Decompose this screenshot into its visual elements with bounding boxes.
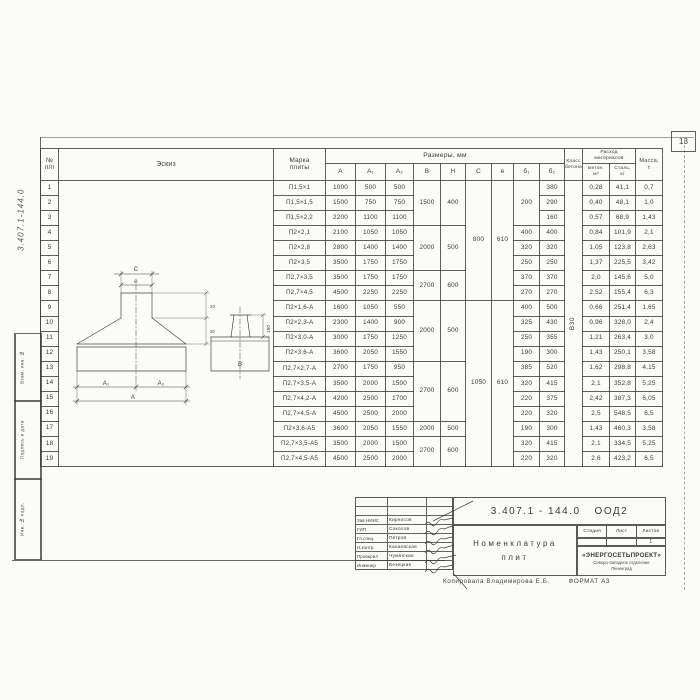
dim-label-e: е — [134, 279, 138, 285]
value-cell: 251,4 — [610, 301, 636, 316]
row-number: 8 — [41, 286, 59, 301]
copier-text: Копировала Владимирова Е.Б. — [443, 578, 550, 585]
value-cell: 5,0 — [636, 271, 663, 286]
header-line: т — [636, 165, 662, 171]
concrete-class: В30 — [565, 181, 583, 467]
plate-mark: П2×3,5 — [274, 256, 326, 271]
value-cell: 1750 — [356, 256, 386, 271]
value-cell: 3500 — [326, 376, 356, 391]
row-number: 11 — [41, 331, 59, 346]
value-cell: 1500 — [386, 376, 414, 391]
value-cell: 220 — [514, 391, 540, 406]
row-number: 18 — [41, 436, 59, 451]
col-header-concrete: Бетон, м³ — [583, 164, 610, 181]
value-cell: 430 — [540, 316, 565, 331]
value-cell: 800 — [466, 181, 492, 301]
value-cell: 3500 — [326, 271, 356, 286]
dim-label-20: 20 — [210, 304, 216, 309]
extension-lines — [152, 293, 209, 344]
sheet-frame-top — [40, 137, 694, 138]
value-cell: 325 — [514, 316, 540, 331]
value-cell: 300 — [540, 421, 565, 436]
value-cell: 1,43 — [583, 421, 610, 436]
value-cell: 3000 — [326, 331, 356, 346]
person-name: Безецкая — [388, 561, 427, 569]
value-cell: 3,58 — [636, 421, 663, 436]
signature-cell — [427, 516, 452, 524]
boss-outline — [121, 293, 152, 318]
value-cell: 2050 — [356, 346, 386, 361]
col-header-A2: А₂ — [386, 164, 414, 181]
value-cell: 3,0 — [636, 331, 663, 346]
nomenclature-table: № п/п Эскиз Марка плиты Размеры, мм Клас… — [40, 148, 663, 467]
format-label: ФОРМАТ А3 — [569, 578, 610, 585]
plate-mark: П2,7×4,2-А — [274, 391, 326, 406]
col-header-C: С — [466, 164, 492, 181]
value-cell: 4500 — [326, 406, 356, 421]
value-cell: 1,05 — [583, 241, 610, 256]
value-cell: 220 — [514, 406, 540, 421]
plate-mark: П1,5×1,5 — [274, 196, 326, 211]
value-cell: 1750 — [356, 331, 386, 346]
value-cell: 1,43 — [583, 346, 610, 361]
sheet-value — [607, 539, 636, 545]
value-cell: 750 — [356, 196, 386, 211]
signature-row: Зав.НИИСКирносов — [356, 516, 452, 525]
value-cell: 400 — [514, 301, 540, 316]
person-role: Зав.НИИС — [356, 516, 388, 524]
value-cell: 4200 — [326, 391, 356, 406]
value-cell: 750 — [386, 196, 414, 211]
value-cell: 1750 — [386, 271, 414, 286]
value-cell: 101,9 — [610, 226, 636, 241]
signature-cell — [427, 507, 452, 515]
value-cell: 0,40 — [583, 196, 610, 211]
value-cell: 2,52 — [583, 286, 610, 301]
header-line: материалов — [583, 156, 635, 162]
value-cell: 3500 — [326, 256, 356, 271]
drawing-title-line2: плит — [501, 553, 528, 562]
col-header-dimensions: Размеры, мм — [326, 149, 565, 164]
value-cell: 355 — [540, 331, 565, 346]
value-cell: 320 — [514, 241, 540, 256]
col-header-b1: б₁ — [514, 164, 540, 181]
person-role: ГИП — [356, 525, 388, 533]
page-number-box: 13 — [671, 131, 696, 152]
table-row: 1 C е А₁ А₂ А 20 30 В 180 П1,5×110005005… — [41, 181, 663, 196]
value-cell: 5,25 — [636, 376, 663, 391]
value-cell: 2,5 — [583, 406, 610, 421]
value-cell: 6,3 — [636, 286, 663, 301]
row-number: 4 — [41, 226, 59, 241]
col-header-sketch: Эскиз — [59, 149, 274, 181]
value-cell: 298,8 — [610, 361, 636, 376]
value-cell: 415 — [540, 376, 565, 391]
value-cell: 155,4 — [610, 286, 636, 301]
value-cell: 375 — [540, 391, 565, 406]
row-number: 10 — [41, 316, 59, 331]
drawing-title-box: Номенклатура плит — [453, 525, 577, 576]
value-cell: 2200 — [326, 211, 356, 226]
slope-outline — [77, 318, 186, 344]
value-cell: 1500 — [386, 436, 414, 451]
signature-row — [356, 507, 452, 516]
row-number: 5 — [41, 241, 59, 256]
value-cell: 380 — [540, 181, 565, 196]
signature-row: ИнженерБезецкая — [356, 561, 452, 569]
value-cell: 328,0 — [610, 316, 636, 331]
value-cell: 1,0 — [636, 196, 663, 211]
stamp-box-vzam-inv: Взам. инв. № — [14, 333, 42, 402]
row-number: 14 — [41, 376, 59, 391]
header-line: Класс — [565, 159, 582, 165]
value-cell: 1,21 — [583, 331, 610, 346]
value-cell: 1100 — [356, 211, 386, 226]
value-cell: 1000 — [326, 181, 356, 196]
value-cell: 500 — [441, 301, 466, 361]
person-role — [356, 498, 388, 506]
plate-mark: П2×3,6-А — [274, 346, 326, 361]
value-cell: 2700 — [326, 361, 356, 376]
value-cell: 2,6 — [583, 452, 610, 467]
col-header-steel: Сталь, кг — [610, 164, 636, 181]
person-role: Инженер — [356, 561, 388, 569]
value-cell: 500 — [441, 421, 466, 436]
value-cell: 290 — [540, 196, 565, 211]
value-cell: 2500 — [356, 391, 386, 406]
header-line: Масса, — [636, 158, 662, 164]
value-cell: 250 — [540, 256, 565, 271]
value-cell: 387,3 — [610, 391, 636, 406]
row-number: 9 — [41, 301, 59, 316]
slab-section-sketch: C е А₁ А₂ А 20 30 В 180 — [59, 181, 274, 466]
value-cell: 370 — [540, 271, 565, 286]
value-cell: 160 — [540, 211, 565, 226]
dim-label-30: 30 — [210, 329, 216, 334]
plate-mark: П2,7×3,5 — [274, 271, 326, 286]
signature-cell — [427, 534, 452, 542]
person-role: Гл.спец. — [356, 534, 388, 542]
dim-label-a: А — [131, 395, 135, 401]
plate-mark: П2,7×3,5-А — [274, 376, 326, 391]
value-cell: 4500 — [326, 286, 356, 301]
value-cell: 2,1 — [636, 226, 663, 241]
value-cell: 460,3 — [610, 421, 636, 436]
value-cell: 610 — [492, 301, 514, 467]
value-cell: 123,8 — [610, 241, 636, 256]
value-cell: 2,42 — [583, 391, 610, 406]
col-header-b2: б₂ — [540, 164, 565, 181]
col-header-material-consumption: Расход материалов — [583, 149, 636, 164]
value-cell: 200 — [514, 181, 540, 226]
col-header-B: В — [414, 164, 441, 181]
plate-mark: П2,7×3,5-А5 — [274, 436, 326, 451]
plate-mark: П2×3,0-А — [274, 331, 326, 346]
value-cell: 2000 — [414, 421, 441, 436]
person-name — [388, 507, 427, 515]
value-cell: 2,0 — [583, 271, 610, 286]
value-cell: 1550 — [386, 346, 414, 361]
signature-cell — [427, 543, 452, 551]
value-cell: 415 — [540, 436, 565, 451]
plate-mark: П2×1,6-А — [274, 301, 326, 316]
stage-value — [578, 539, 607, 545]
value-cell: 2,63 — [636, 241, 663, 256]
value-cell: 2000 — [386, 406, 414, 421]
stage-sheet-header: Стадия Лист Листов — [577, 525, 666, 538]
value-cell: 1500 — [326, 196, 356, 211]
stage-label: Стадия — [578, 526, 607, 537]
value-cell: 225,5 — [610, 256, 636, 271]
value-cell: 6,05 — [636, 391, 663, 406]
dim-label-c: C — [134, 267, 139, 273]
stage-sheet-values: 1 — [577, 538, 666, 546]
value-cell: 320 — [514, 436, 540, 451]
person-name: Кирносов — [388, 516, 427, 524]
value-cell: 0,96 — [583, 316, 610, 331]
value-cell: 1400 — [356, 316, 386, 331]
value-cell: 0,57 — [583, 211, 610, 226]
value-cell: 190 — [514, 421, 540, 436]
plate-mark: П2,7×4,5-А — [274, 406, 326, 421]
header-line: кг — [610, 172, 635, 178]
value-cell: 3500 — [326, 436, 356, 451]
row-number: 3 — [41, 211, 59, 226]
dim-label-a1: А₁ — [103, 381, 109, 387]
plate-outline — [77, 347, 186, 371]
value-cell: 500 — [356, 181, 386, 196]
organization-city: Ленинград — [611, 566, 632, 571]
person-name: Петров — [388, 534, 427, 542]
value-cell: 550 — [386, 301, 414, 316]
person-name: Соколов — [388, 525, 427, 533]
person-role — [356, 507, 388, 515]
col-header-H: Н — [441, 164, 466, 181]
doc-number: 3.407.1 - 144.0 — [491, 506, 581, 517]
dim-label-180: 180 — [266, 325, 271, 333]
organization-box: «ЭНЕРГОСЕТЬПРОЕКТ» Северо-Западное отдел… — [577, 546, 666, 576]
row-number: 7 — [41, 271, 59, 286]
plate-mark: П2×3,6-А5 — [274, 421, 326, 436]
doc-number-box: 3.407.1 - 144.0 ООД2 — [453, 497, 666, 525]
value-cell: 1400 — [386, 241, 414, 256]
value-cell: 3,42 — [636, 256, 663, 271]
value-cell: 600 — [441, 436, 466, 466]
signature-cell — [427, 561, 452, 569]
plate-mark: П2×2,8 — [274, 241, 326, 256]
value-cell: 2500 — [356, 406, 386, 421]
signature-cell — [427, 525, 452, 533]
person-name: Канаевская — [388, 543, 427, 551]
header-line: бетона — [565, 165, 582, 171]
stamp-box-inv-podl: Инв. № подл. — [14, 478, 42, 560]
doc-code: ООД2 — [595, 506, 629, 517]
plate-top-edge — [77, 344, 186, 347]
row-number: 19 — [41, 452, 59, 467]
row-number: 2 — [41, 196, 59, 211]
value-cell: 0,28 — [583, 181, 610, 196]
value-cell: 1500 — [414, 181, 441, 226]
value-cell: 400 — [441, 181, 466, 226]
value-cell: 2,4 — [636, 316, 663, 331]
col-header-e: е — [492, 164, 514, 181]
signature-row — [356, 498, 452, 507]
value-cell: 2800 — [326, 241, 356, 256]
drawing-title-line1: Номенклатура — [473, 539, 557, 548]
value-cell: 900 — [386, 316, 414, 331]
title-block: 3.407.1 - 144.0 ООД2 Номенклатура плит С… — [355, 497, 666, 576]
value-cell: 48,1 — [610, 196, 636, 211]
sheet-label: Лист — [607, 526, 636, 537]
col-header-mass: Масса, т — [636, 149, 663, 181]
value-cell: 270 — [514, 286, 540, 301]
value-cell: 0,84 — [583, 226, 610, 241]
col-header-concrete-class: Класс бетона — [565, 149, 583, 181]
row-number: 16 — [41, 406, 59, 421]
value-cell: 250 — [514, 331, 540, 346]
signature-row: Н.контр.Канаевская — [356, 543, 452, 552]
value-cell: 3600 — [326, 421, 356, 436]
value-cell: 500 — [540, 301, 565, 316]
plate-mark: П2,7×2,7-А — [274, 361, 326, 376]
value-cell: 1600 — [326, 301, 356, 316]
value-cell: 600 — [441, 271, 466, 301]
copier-line: Копировала Владимирова Е.Б. ФОРМАТ А3 — [443, 578, 610, 585]
concrete-class-value: В30 — [570, 317, 577, 330]
value-cell: 1050 — [386, 226, 414, 241]
value-cell: 2,1 — [583, 436, 610, 451]
scanned-drawing-sheet: { "sheet": { "page_number": "13", "margi… — [0, 0, 700, 700]
value-cell: 41,1 — [610, 181, 636, 196]
value-cell: 0,7 — [636, 181, 663, 196]
header-line: п/п — [41, 165, 58, 171]
value-cell: 2100 — [326, 226, 356, 241]
value-cell: 4500 — [326, 452, 356, 467]
col-header-A: А — [326, 164, 356, 181]
value-cell: 1750 — [356, 271, 386, 286]
value-cell: 2700 — [414, 436, 441, 466]
plate-mark: П2,7×4,5 — [274, 286, 326, 301]
value-cell: 68,9 — [610, 211, 636, 226]
dim-label-b: В — [238, 362, 242, 368]
row-number: 13 — [41, 361, 59, 376]
col-header-A1: А₁ — [356, 164, 386, 181]
signature-cell — [427, 498, 452, 506]
value-cell: 500 — [441, 226, 466, 271]
col-header-mark: Марка плиты — [274, 149, 326, 181]
value-cell: 1050 — [356, 301, 386, 316]
value-cell: 2000 — [356, 436, 386, 451]
value-cell: 2,1 — [583, 376, 610, 391]
value-cell: 1100 — [386, 211, 414, 226]
value-cell: 320 — [514, 376, 540, 391]
value-cell: 320 — [540, 452, 565, 467]
row-number: 17 — [41, 421, 59, 436]
value-cell: 1050 — [356, 226, 386, 241]
person-name — [388, 498, 427, 506]
value-cell: 610 — [492, 181, 514, 301]
value-cell: 1750 — [386, 256, 414, 271]
row-number: 6 — [41, 256, 59, 271]
header-line: плиты — [274, 165, 325, 171]
person-role: Н.контр. — [356, 543, 388, 551]
organization-name: «ЭНЕРГОСЕТЬПРОЕКТ» — [582, 552, 661, 559]
value-cell: 270 — [540, 286, 565, 301]
person-role: Проверил — [356, 552, 388, 560]
value-cell: 4,15 — [636, 361, 663, 376]
value-cell: 1,62 — [583, 361, 610, 376]
signatures-table: Зав.НИИСКирносовГИПСоколовГл.спец.Петров… — [355, 497, 453, 570]
value-cell: 1700 — [386, 391, 414, 406]
value-cell: 145,6 — [610, 271, 636, 286]
value-cell: 2500 — [356, 452, 386, 467]
plate-mark: П2×2,1 — [274, 226, 326, 241]
value-cell: 1,43 — [636, 211, 663, 226]
value-cell: 1400 — [356, 241, 386, 256]
value-cell: 950 — [386, 361, 414, 376]
side-boss-outline — [231, 315, 250, 337]
value-cell: 5,25 — [636, 436, 663, 451]
value-cell: 2700 — [414, 271, 441, 301]
value-cell: 400 — [514, 226, 540, 241]
sheets-value: 1 — [637, 539, 665, 545]
signature-row: Гл.спец.Петров — [356, 534, 452, 543]
stamp-label: Инв. № подл. — [15, 479, 28, 559]
value-cell: 0,66 — [583, 301, 610, 316]
plate-mark: П2×2,3-А — [274, 316, 326, 331]
stamp-label: Подпись и дата — [15, 401, 28, 479]
value-cell: 263,4 — [610, 331, 636, 346]
col-header-row-number: № п/п — [41, 149, 59, 181]
stamp-blank — [28, 479, 41, 559]
value-cell: 1250 — [386, 331, 414, 346]
value-cell: 2000 — [356, 376, 386, 391]
signature-row: ГИПСоколов — [356, 525, 452, 534]
value-cell: 2250 — [386, 286, 414, 301]
sheets-label: Листов — [637, 526, 665, 537]
value-cell: 352,8 — [610, 376, 636, 391]
value-cell: 1,37 — [583, 256, 610, 271]
value-cell: 2000 — [414, 301, 441, 361]
person-name: Чукинская — [388, 552, 427, 560]
value-cell: 190 — [514, 346, 540, 361]
stamp-box-podpis-data: Подпись и дата — [14, 400, 42, 480]
value-cell: 1050 — [466, 301, 492, 467]
dim-label-a2: А₂ — [158, 381, 165, 387]
plate-mark: П2,7×4,5-А5 — [274, 452, 326, 467]
value-cell: 3600 — [326, 346, 356, 361]
value-cell: 600 — [441, 361, 466, 421]
plate-mark: П1,5×2,2 — [274, 211, 326, 226]
value-cell: 1550 — [386, 421, 414, 436]
value-cell: 250,1 — [610, 346, 636, 361]
page-number: 13 — [679, 137, 688, 146]
value-cell: 2050 — [356, 421, 386, 436]
value-cell: 320 — [540, 406, 565, 421]
plate-mark: П1,5×1 — [274, 181, 326, 196]
value-cell: 320 — [540, 241, 565, 256]
header-line: м³ — [583, 172, 609, 178]
signature-row: ПроверилЧукинская — [356, 552, 452, 561]
value-cell: 385 — [514, 361, 540, 376]
value-cell: 500 — [386, 181, 414, 196]
value-cell: 1750 — [356, 361, 386, 376]
value-cell: 2250 — [356, 286, 386, 301]
value-cell: 1,65 — [636, 301, 663, 316]
value-cell: 2300 — [326, 316, 356, 331]
value-cell: 2700 — [414, 361, 441, 421]
value-cell: 2000 — [386, 452, 414, 467]
